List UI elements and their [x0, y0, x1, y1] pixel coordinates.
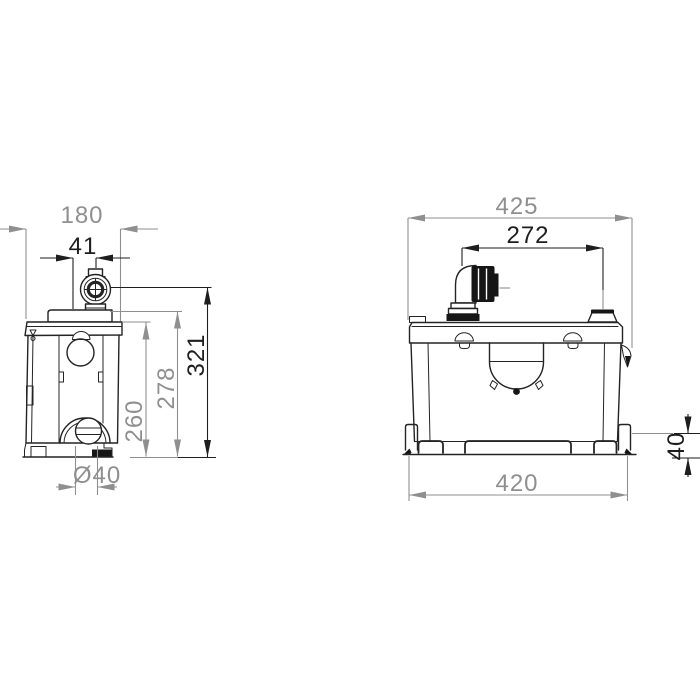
dim-label-272: 272: [506, 222, 549, 249]
dim-label-41: 41: [69, 233, 98, 260]
tank-side: [25, 310, 122, 443]
dim-label-321: 321: [183, 333, 210, 376]
outlet-elbow-front: [447, 266, 511, 322]
dim-label-260: 260: [121, 399, 148, 442]
inlet-side: [60, 418, 112, 457]
dim-label-425: 425: [495, 193, 538, 220]
dim-label-278: 278: [153, 366, 180, 409]
dim-label-40: 40: [663, 432, 690, 461]
technical-drawing: 180 41: [0, 0, 700, 700]
vent-cap: [588, 310, 617, 323]
dim-180: 180: [0, 202, 158, 321]
side-view: 180 41: [0, 202, 216, 495]
dim-label-420: 420: [495, 470, 538, 497]
dim-420: 420: [409, 456, 628, 501]
drawing-canvas: 180 41: [0, 0, 700, 700]
dim-260: 260: [121, 322, 151, 457]
front-view: 425 272: [403, 193, 700, 501]
dim-label-180: 180: [60, 202, 103, 229]
dim-40: 40: [632, 414, 700, 477]
access-cover: [490, 343, 544, 395]
dim-label-inlet-diameter: Ø40: [73, 462, 121, 489]
tank-front: [403, 343, 636, 455]
